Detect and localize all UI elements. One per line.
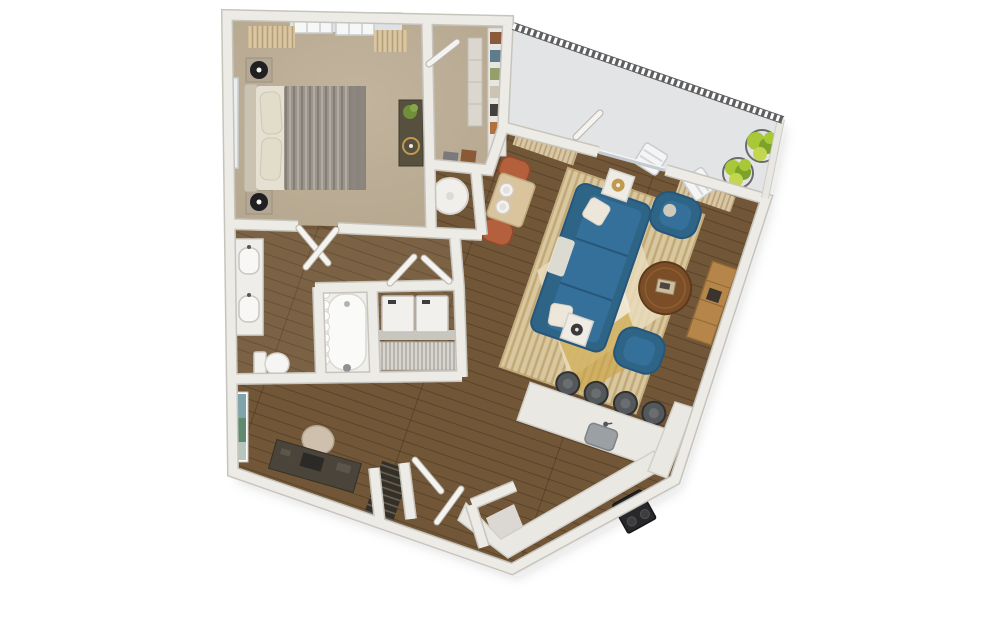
plant-icon xyxy=(410,104,418,112)
floor-plan-screenshot xyxy=(0,0,998,626)
sink xyxy=(239,296,259,322)
lamp-dot xyxy=(257,200,262,205)
bedroom-curtain-left xyxy=(248,26,295,48)
pillow xyxy=(260,91,283,134)
bedroom-curtain-right xyxy=(374,30,407,52)
bathtub xyxy=(321,288,373,378)
floor-plan-svg xyxy=(0,0,998,626)
wire-shelf-texture xyxy=(376,342,458,370)
dresser xyxy=(399,100,423,166)
faucet-icon xyxy=(247,293,251,297)
pillow xyxy=(260,138,282,181)
washer xyxy=(382,296,414,332)
dryer xyxy=(416,296,448,332)
washer-knob xyxy=(388,300,396,304)
drain-icon xyxy=(344,301,350,307)
faucet-icon xyxy=(247,245,251,249)
dryer-knob xyxy=(422,300,430,304)
sink xyxy=(239,248,259,274)
duvet-foot-fold xyxy=(350,86,366,190)
nook-group xyxy=(432,178,468,214)
laundry-group xyxy=(376,296,458,370)
tub-faucet-icon xyxy=(343,364,351,372)
lamp-dot xyxy=(257,68,262,73)
bed xyxy=(244,84,366,192)
headboard xyxy=(244,84,258,192)
